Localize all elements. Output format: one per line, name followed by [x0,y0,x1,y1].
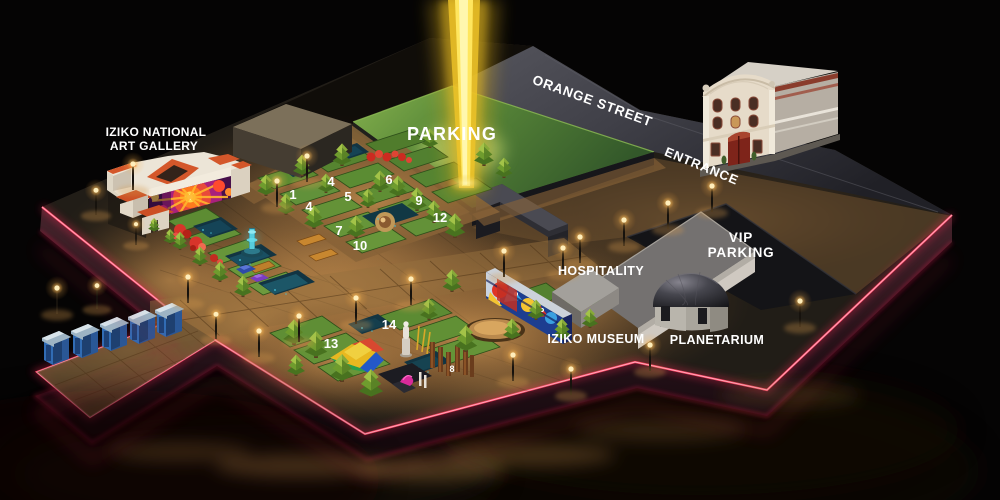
svg-text:ART GALLERY: ART GALLERY [110,139,198,153]
svg-text:9: 9 [415,193,422,208]
svg-text:PARKING: PARKING [407,124,497,144]
svg-text:IZIKO MUSEUM: IZIKO MUSEUM [547,332,644,346]
svg-text:5: 5 [344,189,351,204]
svg-text:HOSPITALITY: HOSPITALITY [558,264,644,278]
svg-text:6: 6 [385,172,392,187]
svg-text:1: 1 [289,187,296,202]
svg-text:14: 14 [382,317,397,332]
svg-text:8: 8 [449,364,454,374]
svg-text:IZIKO NATIONAL: IZIKO NATIONAL [106,125,207,139]
svg-text:VIP: VIP [729,230,753,245]
svg-text:13: 13 [324,336,338,351]
svg-text:12: 12 [433,210,447,225]
svg-text:4: 4 [327,174,335,189]
svg-text:PARKING: PARKING [708,245,775,260]
svg-text:PLANETARIUM: PLANETARIUM [670,333,764,347]
svg-text:10: 10 [353,238,367,253]
svg-text:4: 4 [305,199,313,214]
svg-text:7: 7 [335,223,342,238]
